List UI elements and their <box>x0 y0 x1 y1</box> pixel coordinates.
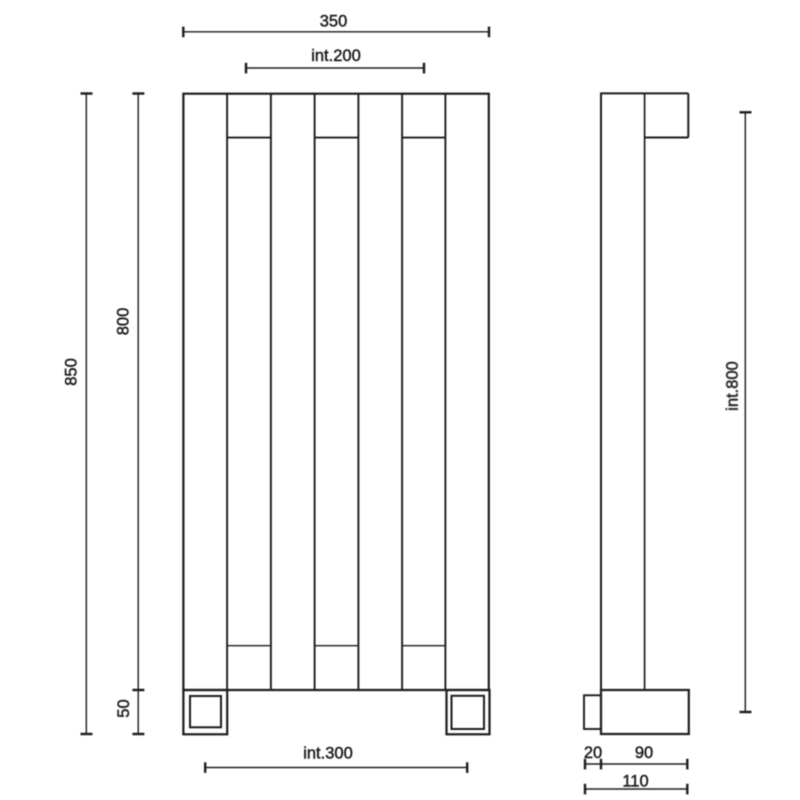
svg-text:800: 800 <box>115 308 133 336</box>
svg-text:50: 50 <box>115 699 133 717</box>
svg-text:20: 20 <box>584 744 602 762</box>
svg-text:int.800: int.800 <box>724 361 742 411</box>
svg-text:int.300: int.300 <box>303 745 353 763</box>
svg-text:110: 110 <box>622 773 648 791</box>
svg-text:int.200: int.200 <box>311 47 361 65</box>
svg-text:90: 90 <box>635 744 653 762</box>
svg-text:350: 350 <box>320 13 348 31</box>
svg-text:850: 850 <box>63 358 81 386</box>
